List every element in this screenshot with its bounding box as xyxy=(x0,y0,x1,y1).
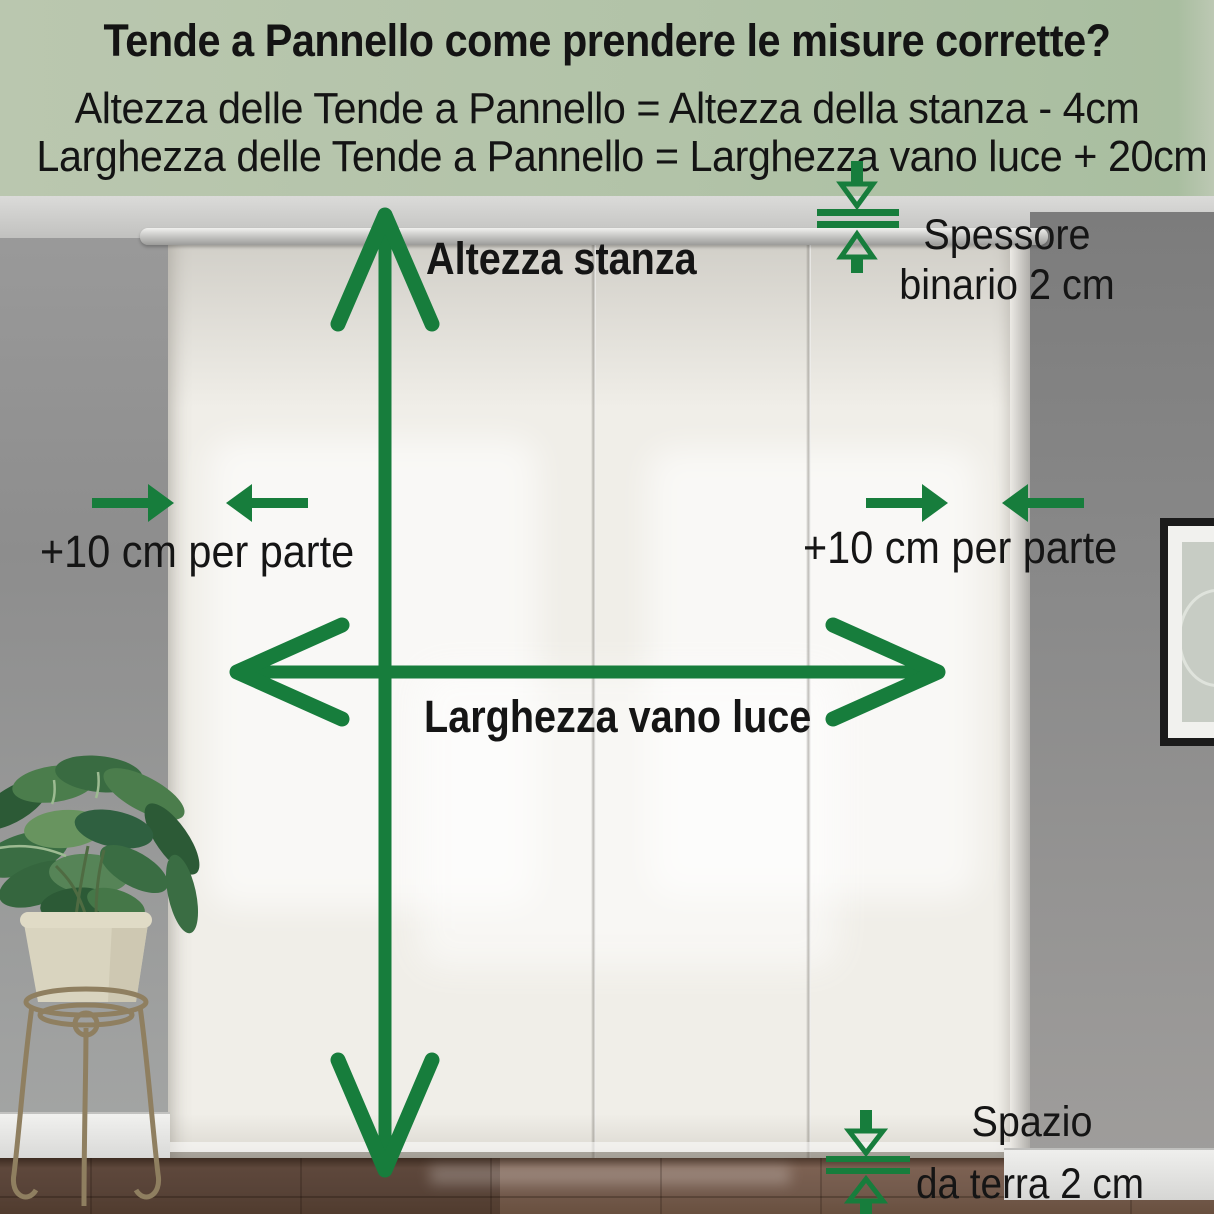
track-thickness-label: Spessore binario 2 cm xyxy=(888,210,1125,310)
track-thickness-line2: binario 2 cm xyxy=(888,260,1125,310)
page-title: Tende a Pannello come prendere le misure… xyxy=(49,15,1166,67)
frame-mat xyxy=(1168,526,1214,738)
height-formula: Altezza delle Tende a Pannello = Altezza… xyxy=(36,84,1177,134)
tile-grout xyxy=(300,1158,302,1214)
track-thickness-line1: Spessore xyxy=(888,210,1125,260)
floor-reflection xyxy=(430,1166,790,1184)
window-recess-edge xyxy=(1010,238,1030,1158)
tile-grout xyxy=(660,1158,662,1214)
floor-gap-label-line2: da terra 2 cm xyxy=(904,1160,1156,1209)
infographic: Tende a Pannello come prendere le misure… xyxy=(0,0,1214,1214)
plant-leaves xyxy=(0,751,209,936)
tile-grout xyxy=(490,1158,492,1214)
tile-grout xyxy=(820,1158,822,1214)
left-gap-label: +10 cm per parte xyxy=(40,526,354,578)
opening-width-label: Larghezza vano luce xyxy=(424,691,811,743)
frame-artwork xyxy=(1182,542,1214,722)
floor-gap-label-line1: Spazio xyxy=(940,1098,1124,1147)
width-formula: Larghezza delle Tende a Pannello = Largh… xyxy=(36,132,1177,182)
plant-stand xyxy=(13,989,158,1206)
panel-seam xyxy=(383,238,388,1158)
curtain-hem xyxy=(168,1142,1010,1152)
artwork-circle xyxy=(1182,589,1214,687)
header-band: Tende a Pannello come prendere le misure… xyxy=(0,0,1214,196)
right-gap-label: +10 cm per parte xyxy=(803,522,1117,574)
potted-plant xyxy=(0,734,226,1214)
picture-frame xyxy=(1160,518,1214,746)
room-height-label: Altezza stanza xyxy=(426,233,697,285)
